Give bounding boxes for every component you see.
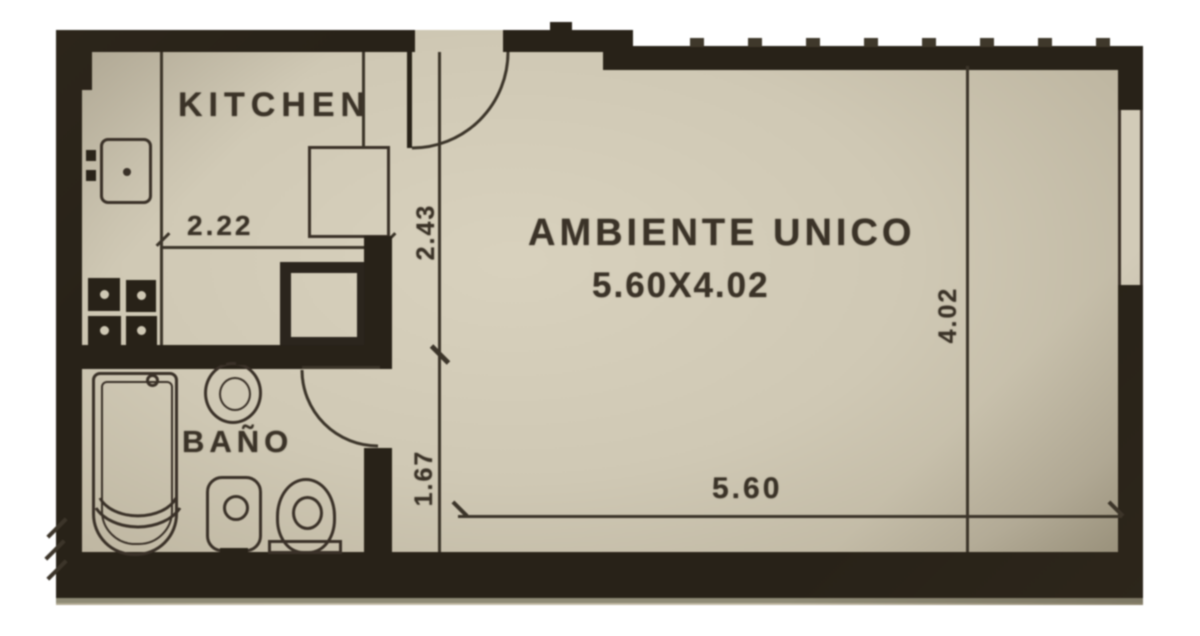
floor-plan-photo: KITCHEN 2.22 BAÑO 2.43 1.67 AMBIENTE UNI… — [0, 0, 1200, 636]
entrance-door-arc — [412, 52, 508, 148]
bathtub-curve — [96, 508, 180, 527]
photo-blur-layer: KITCHEN 2.22 BAÑO 2.43 1.67 AMBIENTE UNI… — [0, 0, 1200, 636]
bathtub-curve — [100, 498, 176, 516]
bathroom-door-arc — [302, 370, 378, 446]
plan-arcs — [0, 0, 1200, 636]
